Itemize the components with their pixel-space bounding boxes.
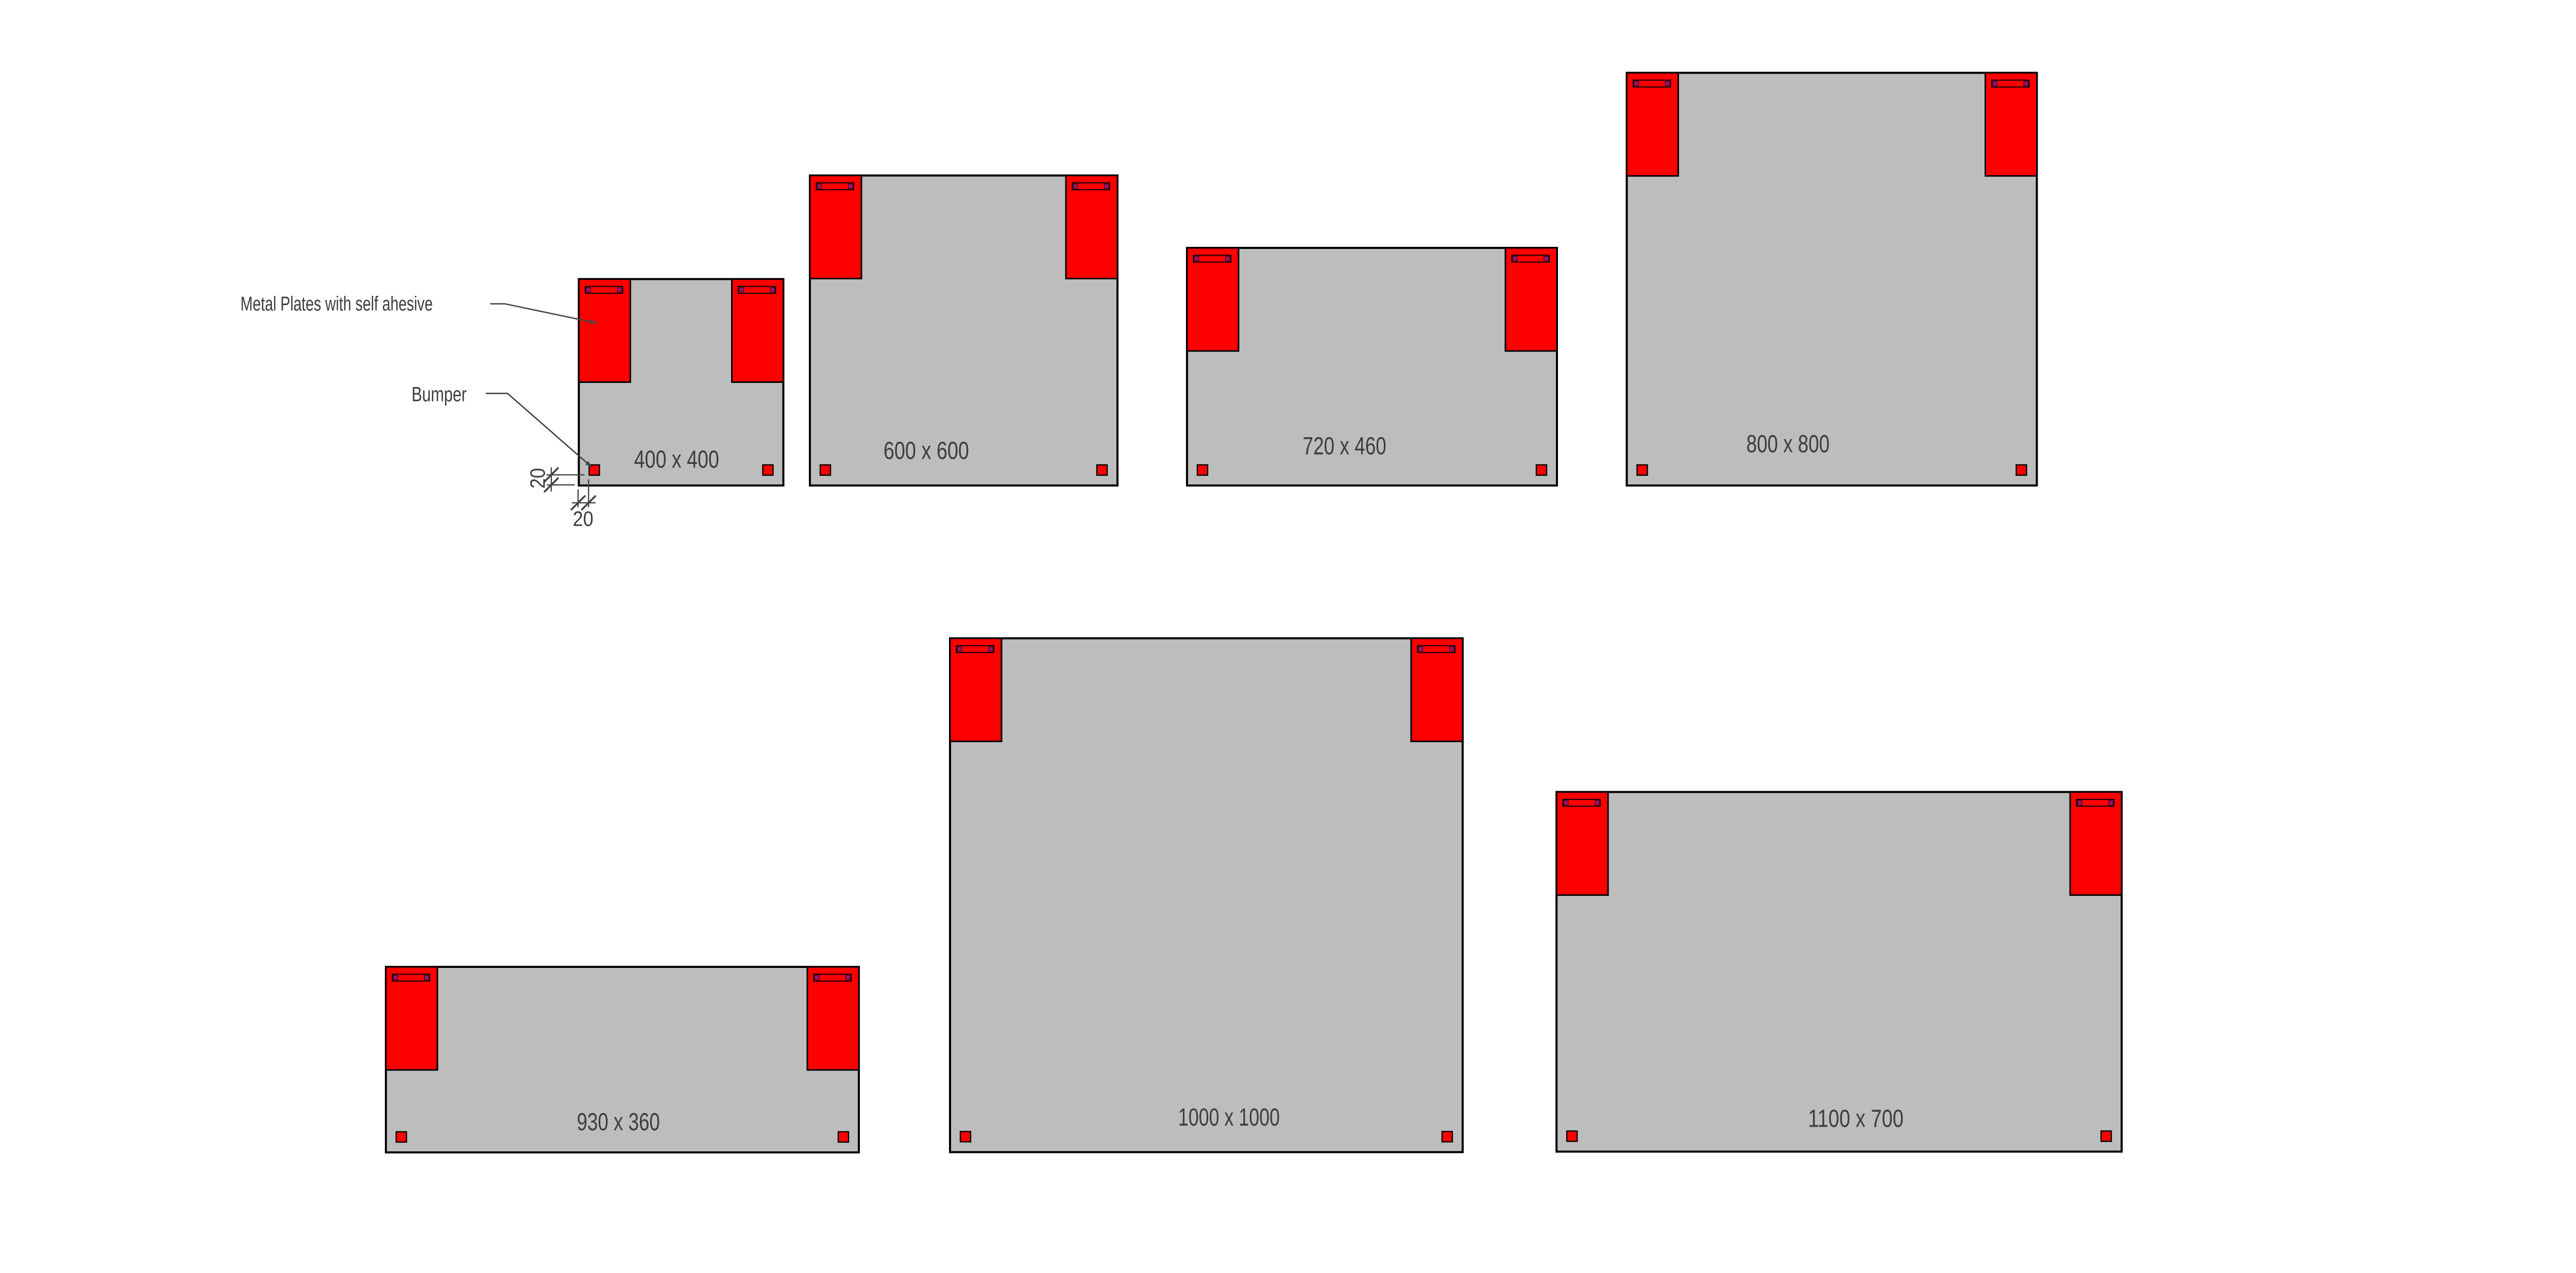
svg-text:1000 x 1000: 1000 x 1000 xyxy=(1178,1103,1280,1131)
svg-text:720 x 460: 720 x 460 xyxy=(1303,432,1386,460)
svg-text:20: 20 xyxy=(526,468,550,489)
svg-text:1100 x 700: 1100 x 700 xyxy=(1808,1105,1903,1132)
svg-text:800 x 800: 800 x 800 xyxy=(1747,430,1830,458)
svg-text:600 x 600: 600 x 600 xyxy=(884,437,969,464)
svg-text:930 x 360: 930 x 360 xyxy=(577,1108,660,1136)
svg-text:Metal Plates with self ahesive: Metal Plates with self ahesive xyxy=(241,293,433,315)
svg-text:400 x 400: 400 x 400 xyxy=(634,446,719,473)
svg-text:Bumper: Bumper xyxy=(412,382,467,406)
svg-text:20: 20 xyxy=(573,507,594,531)
